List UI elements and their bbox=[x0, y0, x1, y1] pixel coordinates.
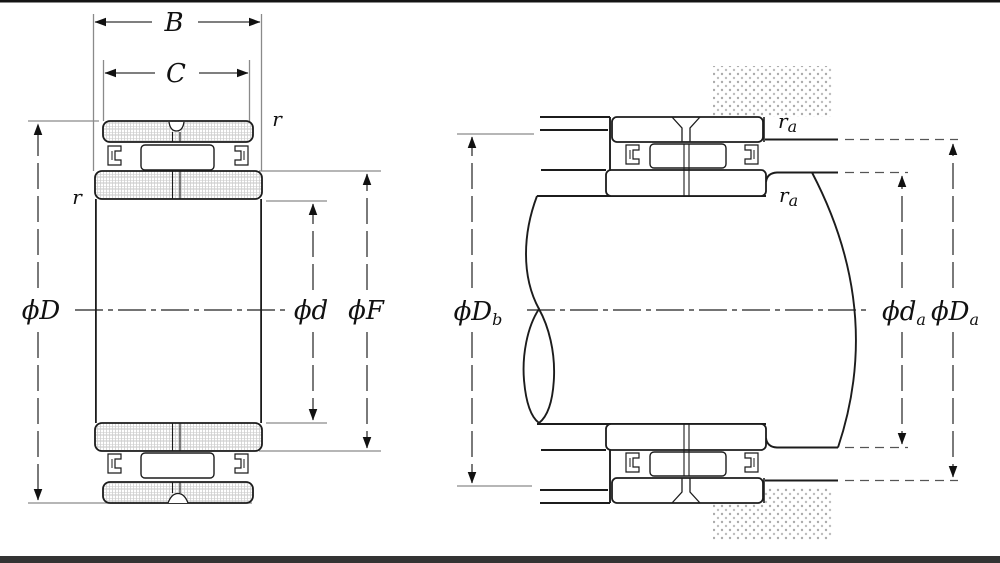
right-view: ϕDb ϕda ϕDa ra ra bbox=[454, 66, 979, 540]
cage-claw bbox=[745, 145, 758, 164]
label-phiD: ϕD bbox=[22, 296, 61, 326]
inner-ring-bottom-mounted bbox=[606, 424, 766, 450]
roller-bottom-mounted bbox=[650, 452, 726, 476]
outer-ring-top-mounted bbox=[612, 117, 763, 142]
label-B: B bbox=[163, 8, 183, 38]
left-bearing-body bbox=[95, 121, 262, 503]
cage-claw bbox=[108, 454, 121, 473]
cage-claw bbox=[235, 146, 248, 165]
roller-bottom bbox=[141, 453, 214, 478]
inner-ring-bottom bbox=[95, 423, 262, 451]
label-phid: ϕd bbox=[294, 296, 328, 326]
outer-ring-bottom-mounted bbox=[612, 478, 763, 503]
label-phida: ϕda bbox=[882, 297, 926, 329]
label-phiDa: ϕDa bbox=[931, 297, 979, 329]
cage-claw bbox=[626, 453, 639, 472]
cage-claw bbox=[626, 145, 639, 164]
label-C: C bbox=[166, 59, 186, 89]
inner-ring-top-mounted bbox=[606, 170, 766, 196]
bearing-dimension-drawing: B C ϕD ϕd ϕF r r bbox=[0, 0, 1000, 563]
cage-claw bbox=[108, 146, 121, 165]
shaft-break-upper bbox=[526, 196, 539, 309]
roller-top bbox=[141, 145, 214, 170]
label-ra-shaft: ra bbox=[779, 183, 798, 210]
bearing-drawing-svg: B C ϕD ϕd ϕF r r bbox=[0, 0, 1000, 563]
cage-claw bbox=[235, 454, 248, 473]
left-view: B C ϕD ϕd ϕF r r bbox=[22, 8, 385, 503]
label-r-top: r bbox=[272, 107, 283, 131]
roller-top-mounted bbox=[650, 144, 726, 168]
bottom-border bbox=[0, 556, 1000, 563]
cage-claw bbox=[745, 453, 758, 472]
label-phiF: ϕF bbox=[348, 296, 385, 326]
inner-ring-top bbox=[95, 171, 262, 199]
housing-hatch-top bbox=[713, 66, 832, 117]
label-phiDb: ϕDb bbox=[454, 297, 503, 329]
shaft-break-loop bbox=[524, 309, 555, 423]
label-r-side: r bbox=[72, 185, 83, 209]
top-border bbox=[0, 0, 1000, 3]
